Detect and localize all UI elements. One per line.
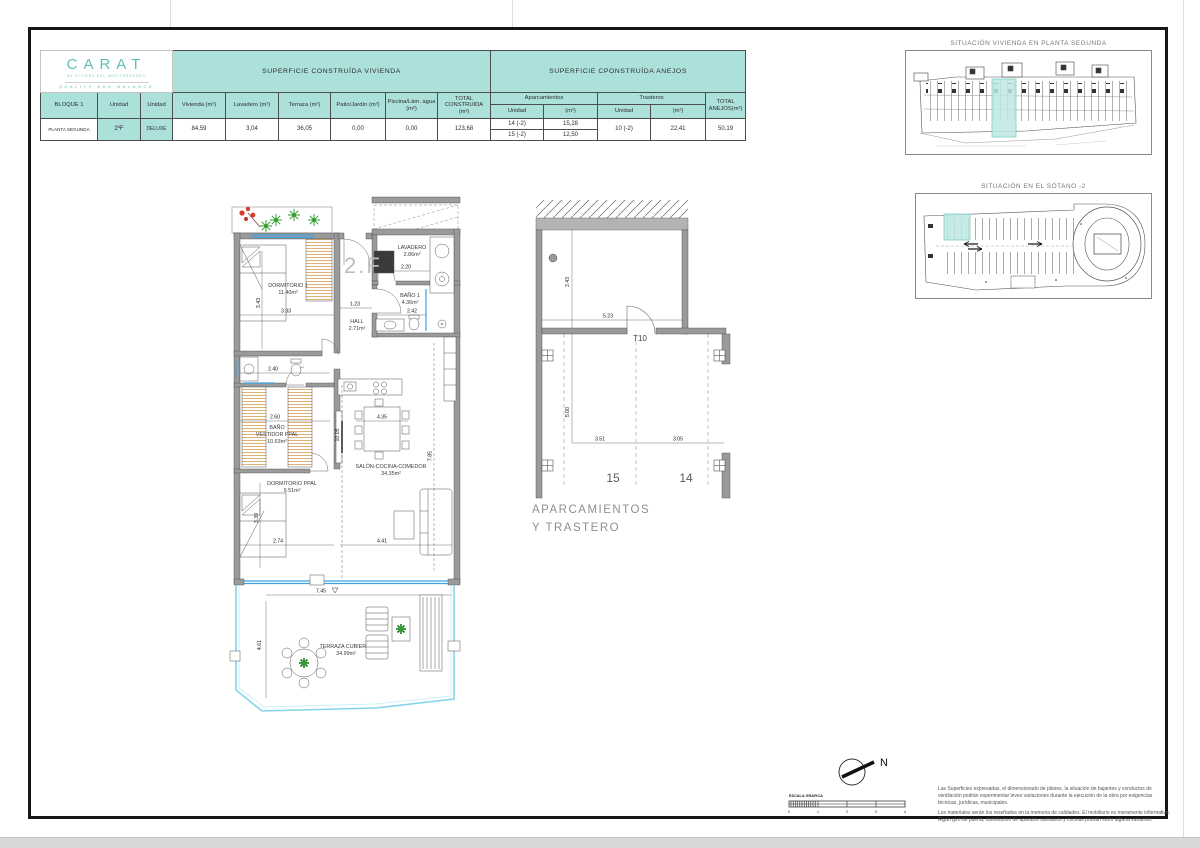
dim-label: 3.43 [565, 277, 571, 287]
col-bloque: BLOQUE 1 [41, 93, 98, 119]
value-unidad: 2ºF [98, 119, 141, 141]
walls [536, 230, 730, 498]
wall [536, 218, 688, 230]
dim-label: 2.60 [270, 415, 280, 421]
group-aparcamientos: Aparcamientos [491, 93, 598, 105]
parking-space-number: 15 [606, 471, 620, 485]
situation-sotano-title: SITUACIÓN EN EL SÓTANO -2 [915, 183, 1152, 190]
room-label: LAVADERO [398, 245, 427, 251]
dim-label: 3.33 [281, 309, 291, 315]
stove-icon [373, 382, 378, 387]
situation-planta-box [905, 50, 1152, 155]
hatched-boundary [536, 200, 688, 218]
brand-logo: CARAT [42, 56, 171, 73]
unit-label: 2.F [344, 253, 382, 278]
room-label: BAÑO 1 [400, 292, 420, 299]
sun-lounger [366, 635, 388, 659]
room-label: TERRAZA CUBIERTA [319, 644, 373, 650]
value-aparc1-m2: 15,28 [544, 119, 598, 130]
unit-dots [926, 83, 1130, 93]
room-area: 2.71m² [349, 326, 366, 332]
value-aparc1-unidad: 14 (-2) [491, 119, 544, 130]
dim-label: 2.40 [268, 367, 278, 373]
dim-label: 7.45 [316, 589, 326, 595]
value-planta: PLANTA SEGUNDA [41, 119, 98, 141]
col-aparc-m2: (m²) [544, 105, 598, 119]
scale-tick: 4 [904, 810, 906, 814]
bathroom-fixtures [376, 315, 446, 331]
dim-label: 5.00 [565, 407, 571, 417]
north-label: N [880, 757, 888, 769]
highlighted-parking [944, 214, 970, 240]
scan-artifact-line [512, 0, 513, 27]
dim-label: 4.61 [257, 640, 263, 650]
area-table: CARAT BY RIVIERA DEL MEDITERRÁNEO QUALIT… [40, 50, 746, 141]
col-unidad-a: Unidad [98, 93, 141, 119]
col-unidad-b: Unidad [141, 93, 173, 119]
parking-caption-line1: APARCAMIENTOS [532, 502, 650, 520]
scale-tick: 3 [875, 810, 877, 814]
column-icon [714, 460, 725, 471]
col-terraza: Terraza (m²) [279, 93, 331, 119]
dim-label: 5.23 [603, 314, 613, 320]
value-trastero-unidad: 10 (-2) [598, 119, 651, 141]
dim-label: 2.20 [401, 265, 411, 271]
parking-caption-line2: Y TRASTERO [532, 520, 650, 538]
scale-tick: 0 [788, 810, 790, 814]
col-aparc-unidad: Unidad [491, 105, 544, 119]
value-aparc2-unidad: 15 (-2) [491, 130, 544, 141]
apartment-floor-plan: 3.43 3.33 1.23 2.20 2.42 2.40 2.60 10.05… [226, 193, 476, 743]
brand-motto: QUALITY AND BALANCE [42, 85, 171, 90]
terrain-line [936, 141, 1106, 146]
col-total-construida: TOTAL CONSTRUIDA (m²) [438, 93, 491, 119]
situation-planta: SITUACIÓN VIVIENDA EN PLANTA SEGUNDA [905, 40, 1152, 155]
dining-table [355, 399, 409, 459]
scale-bar: ESCALA GRAFICA 0 1 2 3 4 [787, 792, 912, 818]
disclaimer-paragraph-2: Los materiales serán los reseñados en la… [938, 810, 1173, 824]
col-lavadero: Lavadero (m²) [226, 93, 279, 119]
north-arrow-icon: N [828, 748, 898, 793]
parking-bay-lines [564, 334, 708, 488]
scan-artifact-line [1183, 0, 1184, 837]
column [230, 651, 240, 661]
group-trasteros: Trasteros [598, 93, 706, 105]
value-terraza: 36,05 [279, 119, 331, 141]
value-piscina: 0,00 [386, 119, 438, 141]
brand-tagline: BY RIVIERA DEL MEDITERRÁNEO [42, 75, 171, 79]
room-label: SALÓN-COCINA-COMEDOR [356, 463, 427, 470]
dim-label: 4.41 [377, 539, 387, 545]
dim-label: 4.35 [377, 415, 387, 421]
dim-label: 3.43 [256, 298, 262, 308]
highlighted-unit [992, 79, 1016, 137]
scale-bar-label: ESCALA GRAFICA [789, 794, 823, 798]
drain-symbol [549, 254, 557, 262]
col-patio: Patio/Jardín (m²) [331, 93, 386, 119]
planter-box [232, 207, 332, 233]
room-area: 11.40m² [278, 290, 298, 296]
room-label: HALL [350, 319, 364, 325]
column-icon [542, 460, 553, 471]
scale-bar-numbers: 0 1 2 3 4 [788, 810, 906, 814]
room-area: 10.63m² [267, 439, 287, 445]
column-icon [714, 350, 725, 361]
column [310, 575, 324, 585]
room-area: 2.86m² [404, 252, 421, 258]
value-patio: 0,00 [331, 119, 386, 141]
room-label: DORMITORIO 1 [268, 283, 307, 289]
wardrobe [288, 387, 312, 467]
wardrobe [306, 239, 332, 301]
brand-logo-cell: CARAT BY RIVIERA DEL MEDITERRÁNEO QUALIT… [41, 51, 173, 93]
situation-sotano-drawing [916, 194, 1151, 298]
dim-label: 3.39 [254, 513, 260, 523]
stall-band [946, 252, 1074, 274]
room-area: 34.35m² [381, 471, 401, 477]
value-lavadero: 3,04 [226, 119, 279, 141]
room-area: 4.36m² [402, 300, 419, 306]
terrace [230, 575, 460, 711]
wardrobe [242, 387, 266, 467]
value-total-anejos: 50,19 [706, 119, 746, 141]
dim-label: 7.85 [428, 451, 434, 461]
scale-tick: 1 [817, 810, 819, 814]
dim-label: 3.51 [595, 437, 605, 443]
column [448, 641, 460, 651]
plan-sheet: CARAT BY RIVIERA DEL MEDITERRÁNEO QUALIT… [0, 0, 1200, 848]
scan-artifact-line [170, 0, 171, 27]
value-vivienda: 84,59 [173, 119, 226, 141]
room-area: 9.51m² [284, 488, 301, 494]
col-total-anejos: TOTAL ANEJOS(m²) [706, 93, 746, 119]
room-label: VESTIDOR PPAL [256, 432, 298, 438]
col-vivienda: Vivienda (m²) [173, 93, 226, 119]
situation-sotano: SITUACIÓN EN EL SÓTANO -2 [915, 183, 1152, 299]
scan-edge-band [0, 837, 1200, 848]
room-label: DORMITORIO PPAL [267, 481, 317, 487]
table-title-vivienda: SUPERFICIE CONSTRUÍDA VIVIENDA [173, 51, 491, 93]
table-title-anejos: SUPERFICIE CPONSTRUÍDA ANEJOS [491, 51, 746, 93]
col-trast-unidad: Unidad [598, 105, 651, 119]
coffee-table [394, 511, 414, 539]
disclaimer-notes: Las Superficies expresadas, el dimension… [938, 786, 1173, 827]
kitchen-units [444, 337, 456, 401]
value-tipo: DELUXE [141, 119, 173, 141]
column-icon [542, 350, 553, 361]
situation-planta-drawing [906, 51, 1151, 154]
dim-label: 2.42 [407, 309, 417, 315]
level-marker-icon [332, 588, 338, 593]
parking-plan: T10 3.43 5.23 5.00 3.51 3.05 15 14 [528, 198, 753, 543]
value-trastero-m2: 22,41 [651, 119, 706, 141]
value-total-construida: 123,68 [438, 119, 491, 141]
room-area: 34.99m² [336, 651, 356, 657]
dim-label: 3.05 [673, 437, 683, 443]
dim-label: 2.74 [273, 539, 283, 545]
dim-label: 10.05 [335, 428, 341, 441]
disclaimer-paragraph-1: Las Superficies expresadas, el dimension… [938, 786, 1173, 807]
situation-planta-title: SITUACIÓN VIVIENDA EN PLANTA SEGUNDA [905, 40, 1152, 47]
terrace-planter [420, 595, 442, 671]
bed [240, 493, 286, 557]
dim-label: 1.23 [350, 302, 360, 308]
trastero-label: T10 [633, 334, 647, 343]
parking-space-number: 14 [679, 471, 693, 485]
col-trast-m2: (m²) [651, 105, 706, 119]
void-area [374, 205, 458, 229]
col-piscina: Piscina/Lám. agua (m²) [386, 93, 438, 119]
situation-sotano-box [915, 193, 1152, 299]
parking-caption: APARCAMIENTOS Y TRASTERO [532, 502, 650, 538]
logo-divider [65, 82, 149, 83]
room-label: BAÑO [269, 424, 284, 431]
stair-block [1011, 276, 1035, 288]
sun-lounger [366, 607, 388, 631]
value-aparc2-m2: 12,50 [544, 130, 598, 141]
kitchen-counter [338, 379, 402, 395]
scale-tick: 2 [846, 810, 848, 814]
laundry-tower [430, 237, 454, 293]
